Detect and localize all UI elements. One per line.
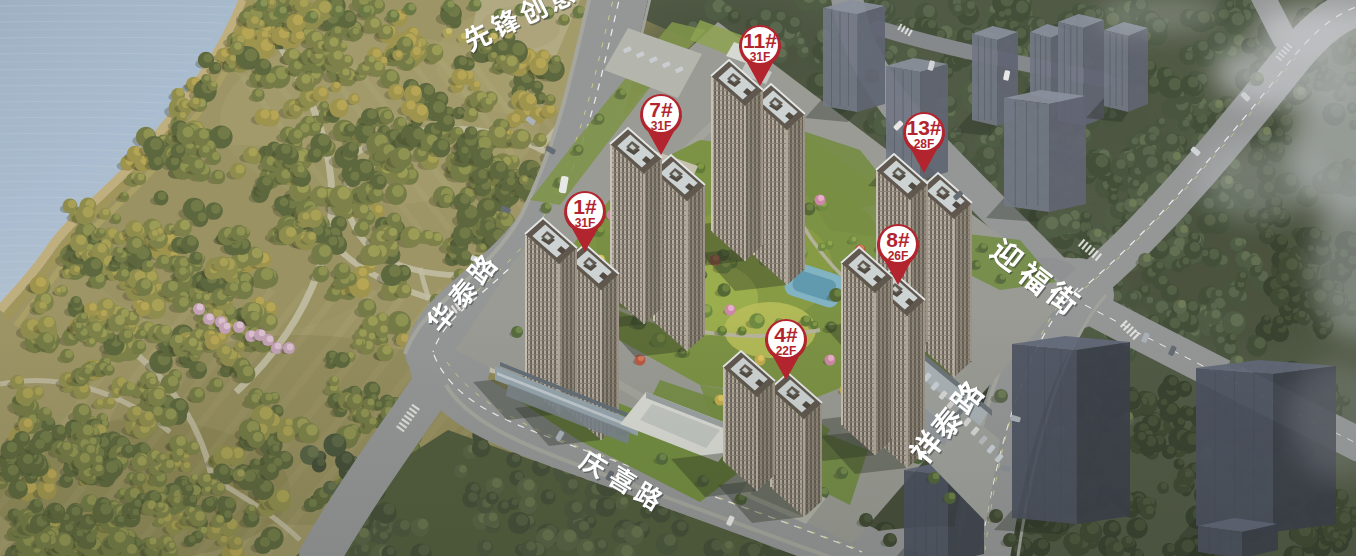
svg-text:28F: 28F: [914, 137, 935, 151]
svg-text:31F: 31F: [651, 119, 672, 133]
svg-text:22F: 22F: [776, 344, 797, 358]
svg-text:31F: 31F: [750, 50, 771, 64]
svg-text:26F: 26F: [888, 249, 909, 263]
svg-text:31F: 31F: [575, 216, 596, 230]
